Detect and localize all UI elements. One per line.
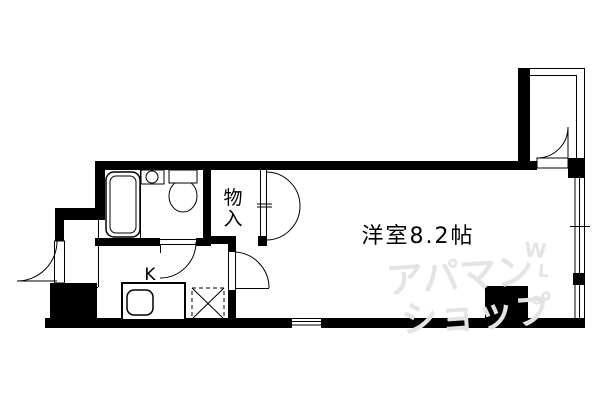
wall-kitchen-east-bottom [228, 290, 236, 328]
front-door [17, 241, 65, 283]
washbasin-icon [141, 170, 164, 184]
kitchen-counter-icon [122, 283, 185, 320]
wall-left-above-door [55, 220, 64, 242]
bathtub-icon [106, 172, 140, 237]
washroom-door [160, 240, 196, 279]
wall-porch-left [518, 68, 530, 170]
bottom-window [292, 319, 321, 328]
front-door-frame [55, 241, 65, 283]
closet-double-doors [257, 170, 300, 240]
washroom-door-swing-arc [160, 242, 196, 278]
right-window [570, 178, 590, 318]
wall-closet-door-bottom [258, 236, 267, 246]
kitchen-room-door [229, 252, 270, 290]
closet-door-arc-bottom [266, 206, 300, 240]
pillar-main [485, 286, 528, 318]
wall-washroom-bottom [95, 238, 160, 246]
wall-kitchen-east-top [228, 236, 236, 252]
wall-closet-left [203, 161, 211, 244]
porch-threshold [537, 158, 568, 168]
entrance-door-swing-arc [537, 127, 568, 158]
wall-washroom-bottom-right [196, 238, 211, 246]
floor-plan: 洋室8.2帖 物 入 K アパマン ショップ W L o [0, 0, 600, 400]
front-door-swing-arc [17, 241, 57, 281]
kitchen-label: K [144, 265, 156, 285]
wall-left-jut [55, 208, 105, 220]
closet-label-bottom-char: 入 [223, 208, 242, 230]
toilet-icon [169, 170, 197, 212]
kitchen-sink-icon [127, 290, 153, 315]
closet-door-arc-top [266, 172, 300, 206]
western-room-label: 洋室8.2帖 [362, 224, 475, 249]
kitchen-door-swing-arc [235, 252, 269, 288]
refrigerator-space-icon [192, 288, 224, 319]
pillar-right-window [573, 273, 585, 285]
wall-corner-ne [568, 158, 585, 178]
closet-label-top-char: 物 [223, 187, 242, 209]
wall-top [95, 161, 537, 170]
floor-plan-drawing: 洋室8.2帖 物 入 K [0, 0, 600, 400]
